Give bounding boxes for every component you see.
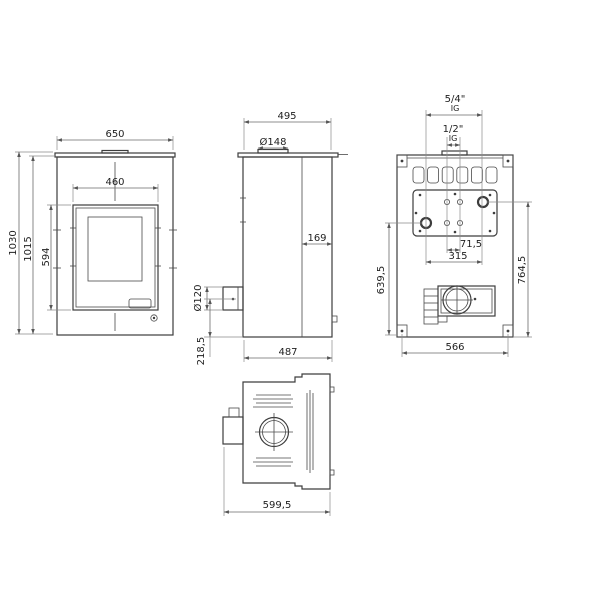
dim-back-base-width: 566 — [445, 342, 464, 353]
back-view-dimensions: 5/4" IG 1/2" IG 71,5 315 639,5 764,5 — [376, 94, 532, 357]
back-flue-outlet — [424, 286, 495, 324]
dim-front-total-height: 1030 — [8, 230, 19, 255]
front-door-frame — [73, 205, 158, 310]
front-view: 650 460 1030 1015 594 — [8, 129, 177, 335]
front-door-glass — [88, 217, 142, 281]
technical-drawing-page: 650 460 1030 1015 594 — [0, 0, 600, 600]
dim-front-door-height: 594 — [41, 247, 52, 266]
top-view-dimensions: 599,5 — [224, 447, 330, 516]
side-view-linework — [223, 150, 348, 338]
dim-side-flue-diameter: Ø148 — [260, 136, 287, 148]
dim-front-body-height: 1015 — [23, 236, 34, 261]
side-view: 495 Ø148 169 Ø120 218,5 487 — [192, 111, 348, 365]
front-view-dimensions: 650 460 1030 1015 594 — [8, 129, 173, 334]
side-top-plate — [238, 153, 338, 157]
dim-back-small-spacing: 71,5 — [460, 239, 482, 250]
back-vent-slots — [413, 167, 497, 183]
dim-front-door-width: 460 — [105, 177, 124, 188]
dim-back-large-fitting-thread: IG — [451, 104, 460, 113]
dim-side-front-depth: 169 — [307, 233, 326, 244]
top-front-grooves — [307, 390, 313, 473]
dim-back-right-height: 764,5 — [517, 256, 528, 285]
dim-back-large-spacing: 315 — [448, 251, 467, 262]
dim-front-width: 650 — [105, 129, 124, 140]
top-view-linework — [223, 374, 334, 489]
dim-side-top-depth: 495 — [277, 111, 296, 122]
top-view: 599,5 — [223, 374, 334, 516]
top-rear-flue-stub — [223, 417, 243, 444]
back-view: 5/4" IG 1/2" IG 71,5 315 639,5 764,5 — [376, 94, 532, 357]
side-body — [243, 157, 332, 337]
dim-side-base-depth: 487 — [278, 347, 297, 358]
back-flue-collar — [442, 151, 467, 155]
back-view-linework — [397, 151, 513, 337]
dim-back-left-height: 639,5 — [376, 266, 387, 295]
dim-top-overall-depth: 599,5 — [263, 500, 292, 511]
front-top-plate — [55, 153, 175, 157]
top-body-outline — [243, 374, 330, 489]
back-large-port-right — [478, 197, 488, 207]
dim-back-small-fitting-thread: IG — [449, 134, 458, 143]
stove-dimension-drawing: 650 460 1030 1015 594 — [0, 0, 600, 600]
dim-side-rear-flue-diameter: Ø120 — [192, 285, 204, 312]
dim-side-rear-flue-height: 218,5 — [196, 337, 207, 366]
back-connection-panel — [413, 190, 497, 236]
